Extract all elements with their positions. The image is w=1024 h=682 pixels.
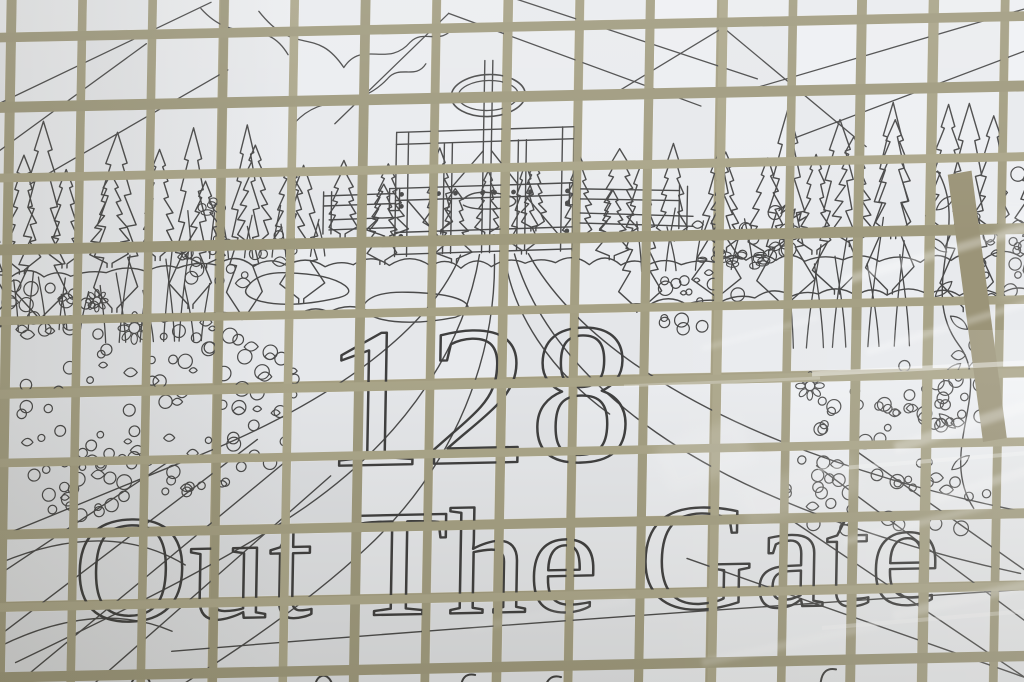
left-shade-vignette (0, 0, 1024, 682)
photo-paper-tile-mural: 128 Out The Gate (0, 0, 1024, 682)
mural-scene: 128 Out The Gate (0, 0, 1024, 682)
